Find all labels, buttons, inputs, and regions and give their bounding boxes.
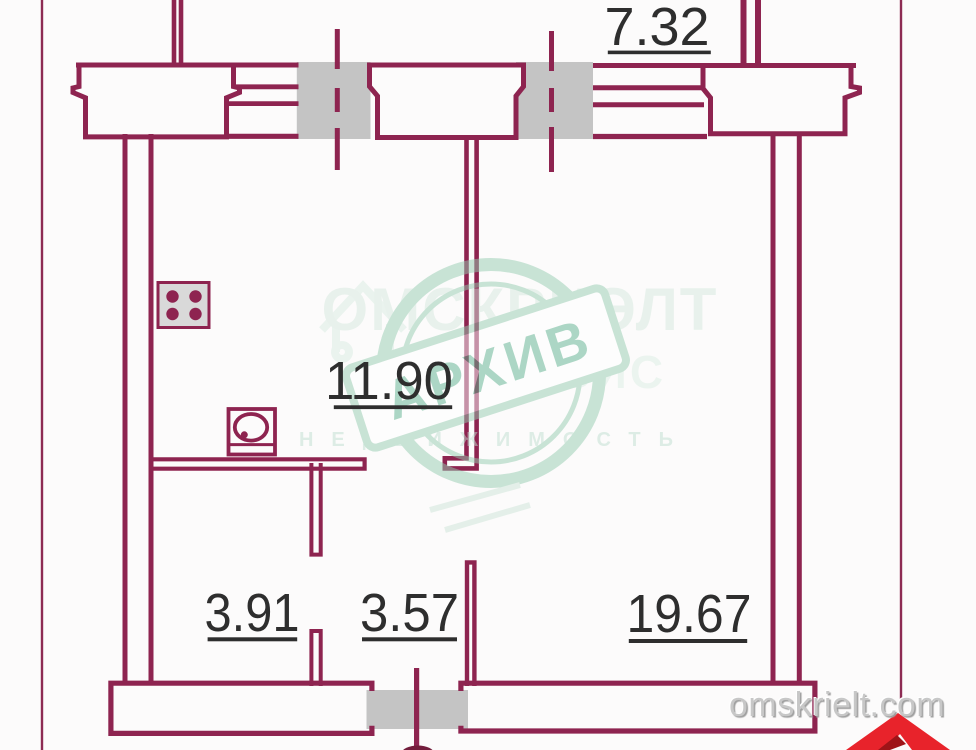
svg-text:19.67: 19.67 (627, 584, 752, 644)
svg-text:11.90: 11.90 (325, 351, 453, 411)
svg-text:НЕДВИЖИМОСТЬ: НЕДВИЖИМОСТЬ (299, 429, 691, 451)
svg-text:3.57: 3.57 (360, 583, 459, 643)
svg-text:7.32: 7.32 (604, 0, 709, 57)
svg-text:3.91: 3.91 (205, 583, 300, 643)
svg-text:omskrielt.com: omskrielt.com (729, 686, 945, 724)
